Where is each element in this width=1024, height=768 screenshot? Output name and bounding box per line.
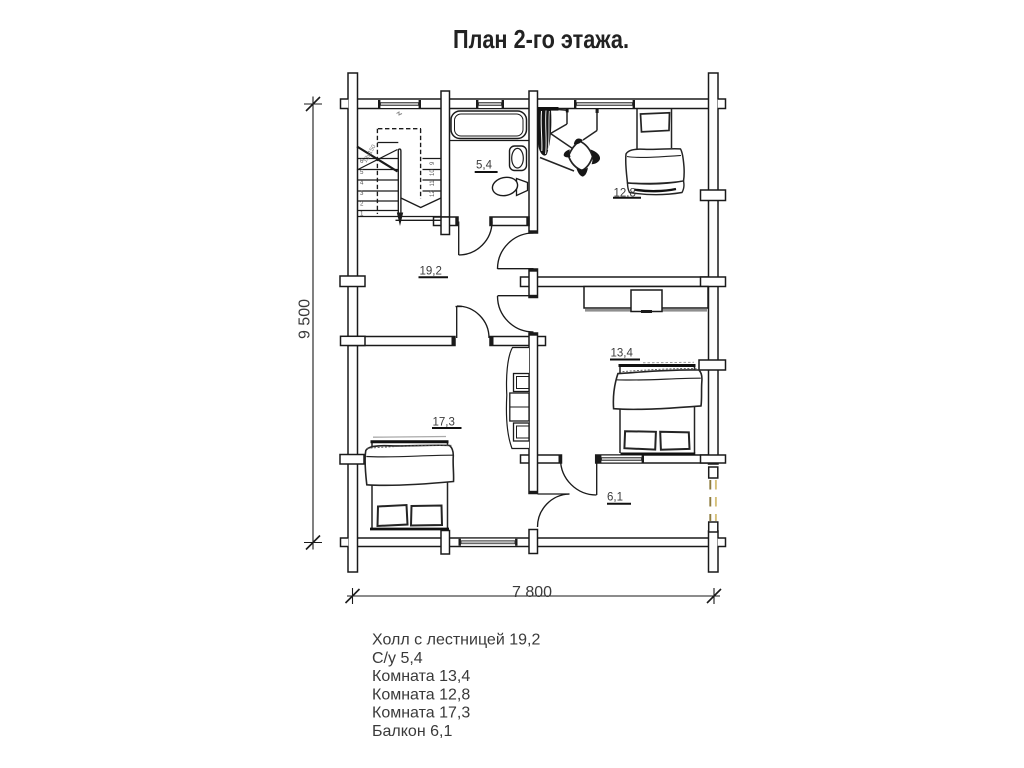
svg-text:9 500: 9 500 xyxy=(297,299,314,339)
svg-text:Комната 13,4: Комната 13,4 xyxy=(372,668,470,685)
svg-text:5: 5 xyxy=(360,169,364,176)
svg-text:13,4: 13,4 xyxy=(611,348,634,360)
svg-text:7 800: 7 800 xyxy=(512,584,552,601)
svg-text:12: 12 xyxy=(430,190,436,197)
svg-text:19,2: 19,2 xyxy=(420,266,442,278)
svg-text:5,4: 5,4 xyxy=(476,160,493,172)
svg-text:1: 1 xyxy=(360,211,364,218)
svg-text:4: 4 xyxy=(360,180,364,187)
svg-text:3: 3 xyxy=(360,190,364,197)
svg-text:С/у 5,4: С/у 5,4 xyxy=(372,650,423,667)
svg-text:17,3: 17,3 xyxy=(433,417,455,429)
svg-text:6,1: 6,1 xyxy=(607,492,623,504)
svg-text:2: 2 xyxy=(360,201,364,208)
svg-text:Комната 12,8: Комната 12,8 xyxy=(372,686,470,703)
svg-text:9: 9 xyxy=(430,161,436,165)
svg-text:Балкон 6,1: Балкон 6,1 xyxy=(372,723,452,740)
svg-text:10: 10 xyxy=(430,169,436,176)
svg-text:План 2-го этажа.: План 2-го этажа. xyxy=(453,24,629,54)
svg-text:Холл с лестницей 19,2: Холл с лестницей 19,2 xyxy=(372,632,540,649)
svg-text:11: 11 xyxy=(430,180,436,187)
svg-text:Комната 17,3: Комната 17,3 xyxy=(372,705,470,722)
